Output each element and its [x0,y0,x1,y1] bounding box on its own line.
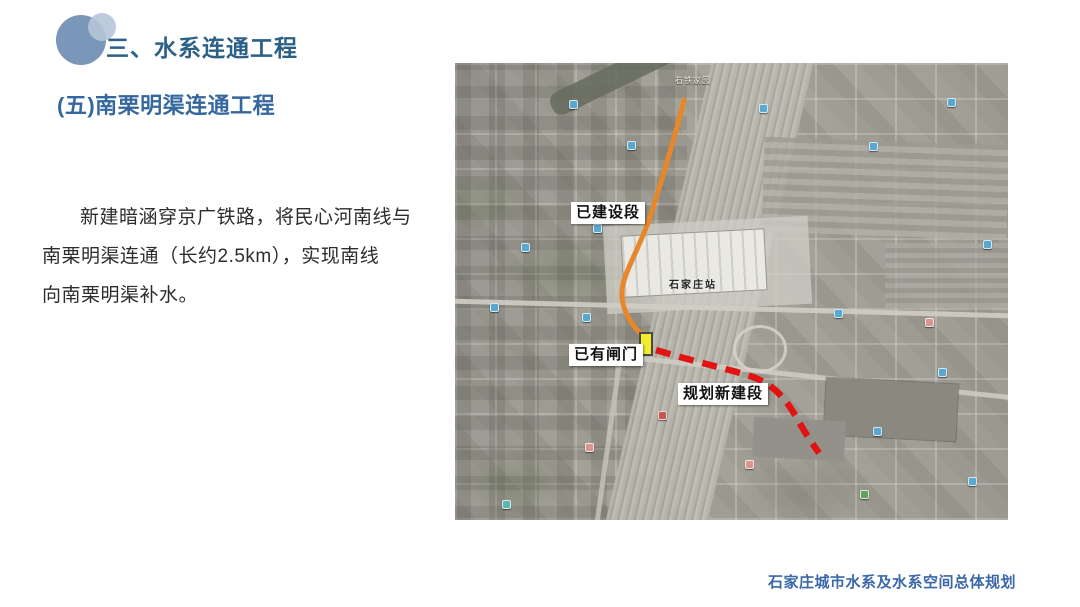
poi-map-label: 石铁家园 [675,75,711,86]
map-poi-icon [593,224,602,233]
planned-section-label: 规划新建段 [678,383,768,405]
map-poi-icon [490,303,499,312]
body-line: 向南栗明渠补水。 [42,276,442,315]
slide: 三、水系连通工程 (五)南栗明渠连通工程 新建暗涵穿京广铁路，将民心河南线与 南… [0,0,1080,607]
satellite-map: 石家庄站 石铁家园 已建设段 已有闸门 规划新建段 [455,63,1008,520]
map-poi-icon [834,309,843,318]
station-map-label: 石家庄站 [669,276,717,291]
poi-marker-layer [455,63,1008,520]
built-section-label: 已建设段 [571,202,645,224]
map-poi-icon [658,411,667,420]
map-poi-icon [745,460,754,469]
map-poi-icon [521,243,530,252]
map-poi-icon [759,104,768,113]
map-poi-icon [925,318,934,327]
map-poi-icon [502,500,511,509]
map-poi-icon [585,443,594,452]
map-poi-icon [569,100,578,109]
map-poi-icon [582,313,591,322]
map-poi-icon [869,142,878,151]
section-subtitle: (五)南栗明渠连通工程 [57,88,275,120]
body-line: 新建暗涵穿京广铁路，将民心河南线与 [42,198,442,237]
map-poi-icon [860,490,869,499]
map-poi-icon [627,141,636,150]
footer-plan-title: 石家庄城市水系及水系空间总体规划 [768,571,1016,592]
map-poi-icon [947,98,956,107]
existing-gate-label: 已有闸门 [569,344,643,366]
page-title: 三、水系连通工程 [106,29,298,63]
map-poi-icon [938,368,947,377]
map-poi-icon [968,477,977,486]
body-paragraph: 新建暗涵穿京广铁路，将民心河南线与 南栗明渠连通（长约2.5km），实现南线 向… [42,198,442,315]
map-poi-icon [983,240,992,249]
map-poi-icon [873,427,882,436]
body-line: 南栗明渠连通（长约2.5km），实现南线 [42,237,442,276]
